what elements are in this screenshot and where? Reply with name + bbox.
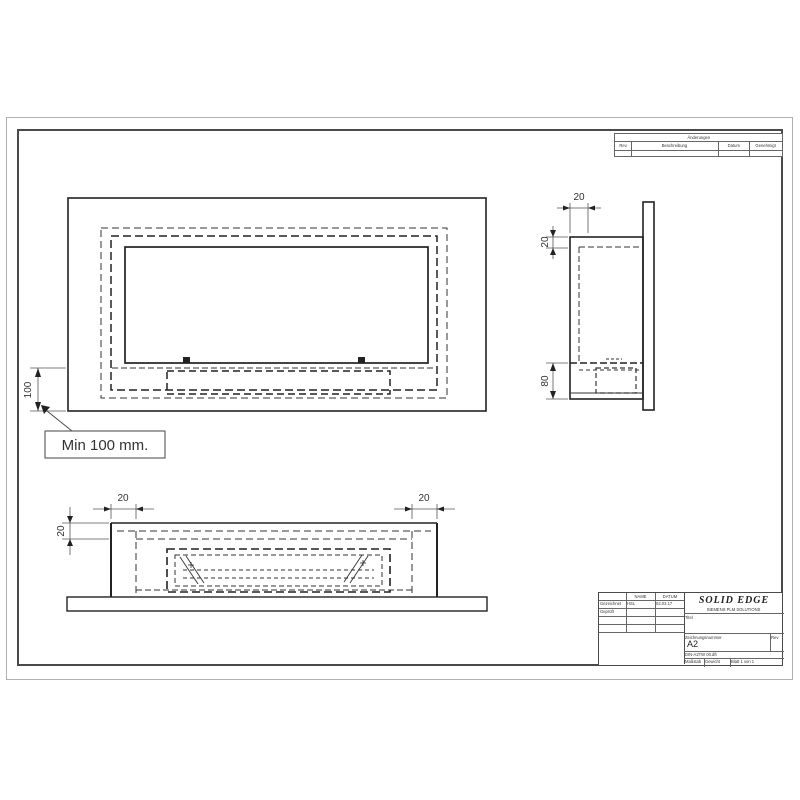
dim-side-20-top — [557, 203, 601, 233]
dim-plan-20-right — [394, 504, 455, 519]
dim-plan-20-front — [62, 507, 109, 555]
drawing-views: 100 Min 100 mm. 20 — [0, 0, 800, 800]
title-cell: Titel — [685, 614, 783, 632]
solid-edge-logo: SOLID EDGE — [684, 596, 784, 606]
revision-title-cell: Änderungen — [615, 134, 782, 141]
front-view — [68, 198, 486, 411]
plan-view — [67, 523, 487, 611]
approval-row-drawn-date: 02.03.17 — [656, 600, 684, 608]
filename-cell: DIN-A2TW 00.dft — [685, 651, 783, 658]
approval-row-checked-label: Geprüft — [600, 608, 626, 616]
dim-front-100 — [30, 368, 66, 411]
dim-plan-20-left — [93, 504, 154, 519]
logo-cell: SOLID EDGE SIEMENS PLM SOLUTIONS — [684, 593, 784, 613]
sheet-number-cell: Blatt 1 von 1 — [731, 658, 783, 666]
burner-tab-right — [358, 357, 365, 363]
sheet-size: A2 — [687, 640, 698, 649]
callout-min-100: Min 100 mm. — [62, 437, 149, 454]
drawing-sheet: 100 Min 100 mm. 20 — [0, 0, 800, 800]
approval-row-drawn-label: Gezeichnet — [600, 600, 626, 608]
logo-subtitle: SIEMENS PLM SOLUTIONS — [707, 608, 761, 612]
title-block: NAME DATUM Gezeichnet HSL 02.03.17 Geprü… — [598, 592, 783, 666]
revision-col-approved: Genehmigt — [749, 141, 782, 150]
approval-row-drawn-name: HSL — [627, 600, 655, 608]
revision-title: Änderungen — [687, 135, 710, 139]
dim-label-plan-right-wall: 20 — [418, 493, 430, 504]
dim-label-side-80: 80 — [540, 375, 551, 387]
dim-label-side-depth: 20 — [573, 192, 585, 203]
rev-cell: Rev — [771, 634, 783, 640]
scale-cell: Maßstab — [685, 658, 704, 666]
revision-col-rev: Rev — [615, 141, 631, 150]
dim-label-plan-front-wall: 20 — [56, 525, 67, 537]
dim-label-front-100: 100 — [23, 381, 34, 398]
weight-cell: Gewicht — [705, 658, 730, 666]
dim-label-side-flange: 20 — [540, 236, 551, 248]
revision-table: Änderungen Rev Beschreibung Datum Genehm… — [614, 133, 783, 157]
logo-subtitle-wrap: SIEMENS PLM SOLUTIONS — [684, 606, 784, 614]
approval-name-header: NAME — [626, 593, 655, 600]
burner-tab-left — [183, 357, 190, 363]
dim-label-plan-left-wall: 20 — [117, 493, 129, 504]
approval-date-header: DATUM — [655, 593, 684, 600]
revision-col-description: Beschreibung — [631, 141, 718, 150]
revision-col-date: Datum — [718, 141, 749, 150]
side-view — [570, 202, 654, 410]
